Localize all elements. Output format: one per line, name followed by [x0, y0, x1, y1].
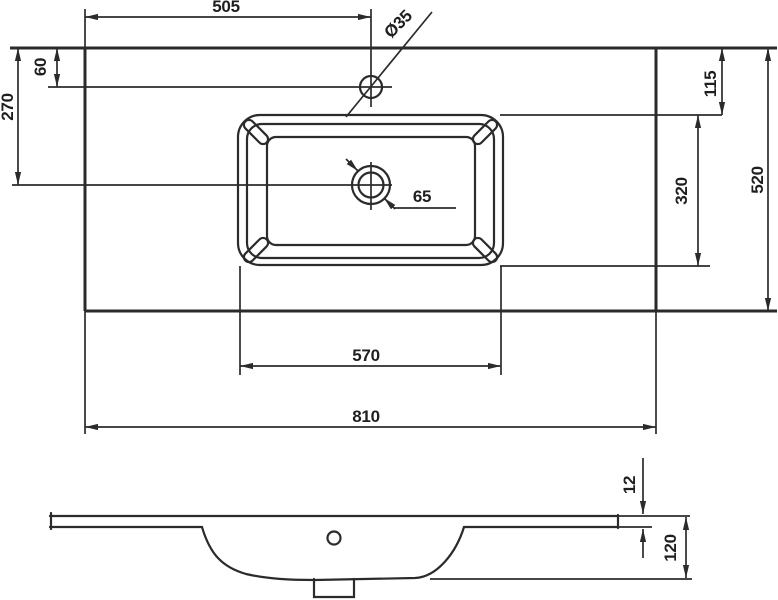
dim-faucet-diameter-label: Ø35: [380, 6, 416, 42]
dim-115: 115: [500, 48, 722, 115]
top-view: Ø35 65 505 60 270: [0, 0, 777, 434]
dim-505-label: 505: [212, 0, 239, 16]
drain-hole: 65: [12, 159, 456, 210]
technical-drawing: Ø35 65 505 60 270: [0, 0, 778, 600]
dim-320: 320: [500, 115, 710, 266]
dim-60-label: 60: [31, 58, 50, 76]
drain-dim-arrow-lower: [384, 198, 395, 209]
faucet-hole: Ø35: [48, 6, 432, 117]
dim-drain-diameter-label: 65: [413, 187, 431, 206]
overflow-hole-circle: [328, 532, 341, 545]
dim-520-label: 520: [748, 166, 767, 193]
side-view: 12 120: [50, 458, 692, 597]
dim-270-label: 270: [0, 93, 17, 120]
drain-dim-arrow-upper: [346, 159, 358, 171]
dim-60: 60: [31, 48, 57, 87]
dim-12-label: 12: [620, 476, 639, 494]
drain-stub: [314, 579, 354, 597]
bowl-profile: [202, 527, 464, 597]
dim-320-label: 320: [672, 177, 691, 204]
drawing-canvas: Ø35 65 505 60 270: [0, 0, 778, 600]
dim-520: 520: [748, 48, 768, 311]
dim-120-label: 120: [661, 534, 680, 561]
dim-505: 505: [85, 0, 371, 48]
dim-810: 810: [85, 311, 656, 434]
dim-570-label: 570: [352, 346, 379, 365]
dim-270: 270: [0, 48, 18, 185]
dim-810-label: 810: [352, 407, 379, 426]
dim-570: 570: [240, 266, 501, 375]
bowl-underside-curve: [202, 527, 464, 580]
slab-profile: [50, 513, 618, 529]
dim-115-label: 115: [701, 71, 720, 98]
